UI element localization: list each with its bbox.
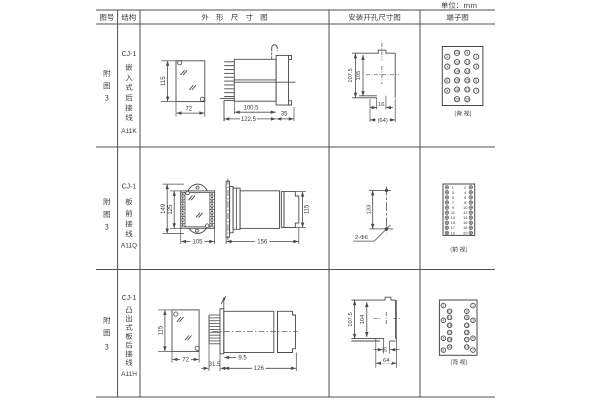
svg-text:10: 10: [455, 51, 459, 55]
svg-text:CJ-1: CJ-1: [122, 51, 137, 58]
svg-text:156: 156: [257, 239, 268, 245]
svg-text:149: 149: [161, 203, 167, 214]
svg-text:105: 105: [192, 239, 203, 245]
svg-text:115: 115: [304, 204, 310, 214]
svg-text:A11Q: A11Q: [121, 243, 137, 250]
svg-text:4: 4: [446, 65, 448, 69]
svg-text:122.5: 122.5: [241, 117, 257, 123]
svg-text:17: 17: [465, 88, 469, 92]
svg-text:15: 15: [465, 79, 469, 83]
svg-text:5: 5: [472, 336, 474, 340]
svg-text:14: 14: [455, 69, 459, 73]
svg-text:A11K: A11K: [121, 128, 137, 135]
svg-text:126: 126: [254, 366, 265, 372]
svg-text:133: 133: [366, 205, 372, 215]
svg-text:18: 18: [448, 338, 452, 342]
svg-text:13: 13: [465, 69, 469, 73]
svg-text:31.5: 31.5: [209, 362, 221, 368]
svg-text:16: 16: [448, 331, 452, 335]
svg-text:115: 115: [159, 325, 165, 335]
svg-text:16: 16: [378, 102, 384, 108]
svg-text:20: 20: [448, 345, 452, 349]
svg-text:72: 72: [185, 107, 192, 113]
svg-text:115: 115: [161, 76, 167, 86]
svg-text:12: 12: [448, 316, 452, 320]
svg-text:18: 18: [455, 88, 459, 92]
svg-text:13: 13: [465, 323, 469, 327]
svg-text:19: 19: [465, 345, 469, 349]
svg-text:11: 11: [465, 60, 469, 64]
svg-text:8: 8: [446, 89, 448, 93]
svg-text:7: 7: [472, 348, 474, 352]
svg-text:16: 16: [455, 79, 459, 83]
svg-text:6: 6: [446, 79, 448, 83]
svg-text:104: 104: [360, 314, 366, 324]
svg-text:64: 64: [383, 358, 390, 364]
svg-text:105: 105: [356, 71, 362, 81]
svg-text:CJ-1: CJ-1: [122, 184, 137, 191]
svg-text:5: 5: [475, 79, 477, 83]
svg-text:35: 35: [281, 112, 288, 118]
svg-text:9: 9: [466, 309, 468, 313]
svg-text:9: 9: [466, 51, 468, 55]
svg-text:72: 72: [182, 357, 189, 363]
svg-text:12: 12: [455, 60, 459, 64]
svg-text:A11H: A11H: [121, 371, 137, 378]
svg-text:17: 17: [465, 338, 469, 342]
svg-text:4: 4: [443, 318, 445, 322]
svg-text:1: 1: [475, 55, 477, 59]
svg-text:125: 125: [168, 204, 174, 215]
svg-text:(64): (64): [377, 118, 387, 124]
svg-text:107.5: 107.5: [348, 312, 354, 327]
svg-text:6: 6: [443, 336, 445, 340]
svg-text:8: 8: [443, 348, 445, 352]
svg-text:2: 2: [443, 304, 445, 308]
svg-text:9.5: 9.5: [238, 356, 247, 362]
svg-text:CJ-1: CJ-1: [122, 295, 137, 302]
svg-text:1: 1: [472, 304, 474, 308]
svg-text:2: 2: [446, 55, 448, 59]
svg-text:11: 11: [465, 316, 469, 320]
svg-text:100.5: 100.5: [243, 106, 259, 112]
svg-text:3: 3: [475, 65, 477, 69]
svg-text:7: 7: [475, 89, 477, 93]
svg-text:14: 14: [448, 323, 452, 327]
svg-text:19: 19: [465, 97, 469, 101]
svg-text:2-Φ6: 2-Φ6: [355, 235, 368, 241]
svg-text:3: 3: [472, 318, 474, 322]
svg-text:16: 16: [382, 347, 388, 353]
svg-text:20: 20: [463, 230, 468, 235]
svg-text:19: 19: [451, 230, 456, 235]
svg-text:10: 10: [448, 309, 452, 313]
svg-text:15: 15: [465, 331, 469, 335]
svg-text:20: 20: [455, 97, 459, 101]
svg-text:107.5: 107.5: [348, 68, 354, 83]
